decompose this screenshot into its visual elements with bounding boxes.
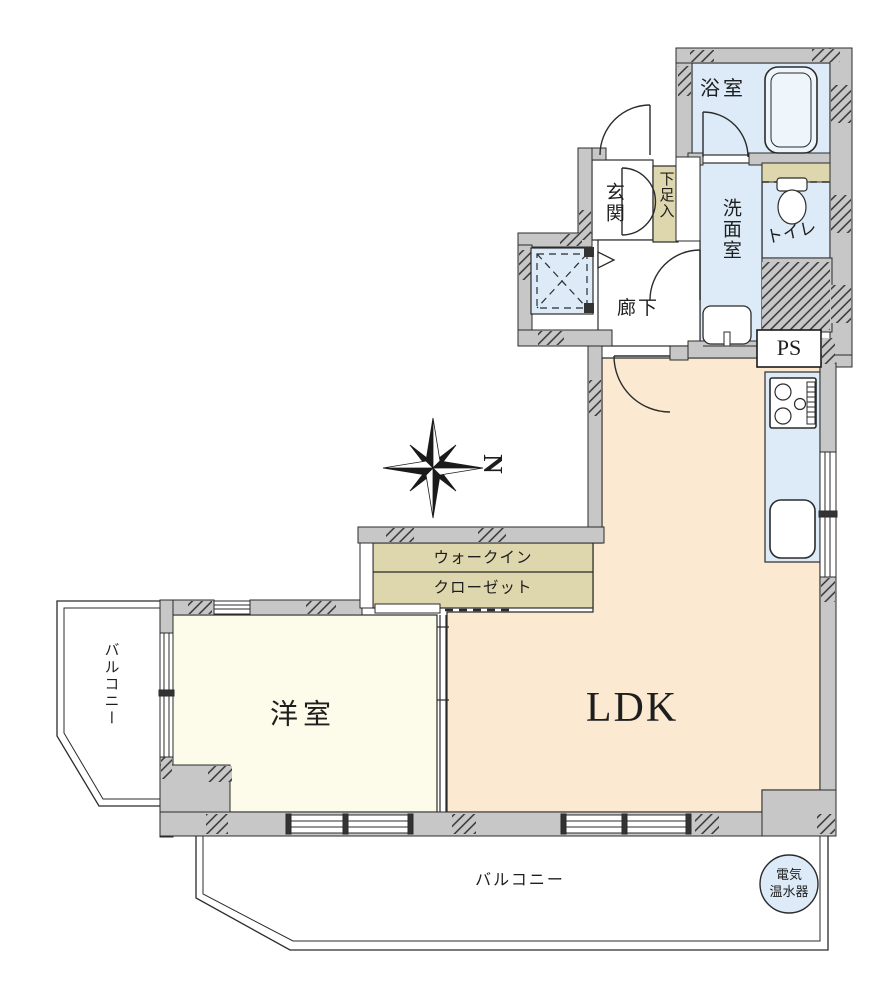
pipe-space-label: PS — [757, 330, 821, 367]
bathtub — [765, 67, 817, 153]
ldk-label: LDK — [586, 685, 678, 731]
western-room-label: 洋室 — [270, 701, 336, 732]
hallway-label: 廊下 — [617, 299, 659, 320]
balcony-bottom-outline — [196, 836, 828, 950]
floor-plan: 浴室 トイレ 洗面室 玄関 下足入 廊下 PS ウォークイン クローゼット 洋室… — [0, 0, 888, 984]
balcony-left-label: バルコニー — [102, 642, 119, 727]
compass-north-label: N — [477, 454, 507, 474]
duct-wall — [676, 157, 700, 241]
closet-left-wall — [360, 543, 373, 608]
water-heater-label: 電気 温水器 — [769, 867, 808, 901]
stove — [770, 378, 816, 428]
closet-label-line2: クローゼット — [433, 579, 532, 596]
bath-label: 浴室 — [700, 78, 746, 100]
kitchen-sink — [770, 500, 815, 558]
balcony-bottom-label: バルコニー — [475, 872, 565, 890]
floor-plan-drawing — [0, 0, 888, 984]
water-heater-label-line1: 電気 — [776, 867, 802, 882]
washbasin — [703, 306, 758, 346]
shoe-cabinet-label: 下足入 — [657, 171, 674, 219]
washroom-label: 洗面室 — [719, 198, 740, 261]
entrance-label: 玄関 — [602, 182, 623, 224]
room-hallway — [598, 240, 700, 346]
closet-sliding-panel — [375, 604, 440, 613]
water-heater-label-line2: 温水器 — [769, 884, 808, 899]
closet-label-line1: ウォークイン — [433, 549, 532, 566]
compass-icon — [383, 418, 483, 518]
entrance-door — [600, 105, 650, 155]
